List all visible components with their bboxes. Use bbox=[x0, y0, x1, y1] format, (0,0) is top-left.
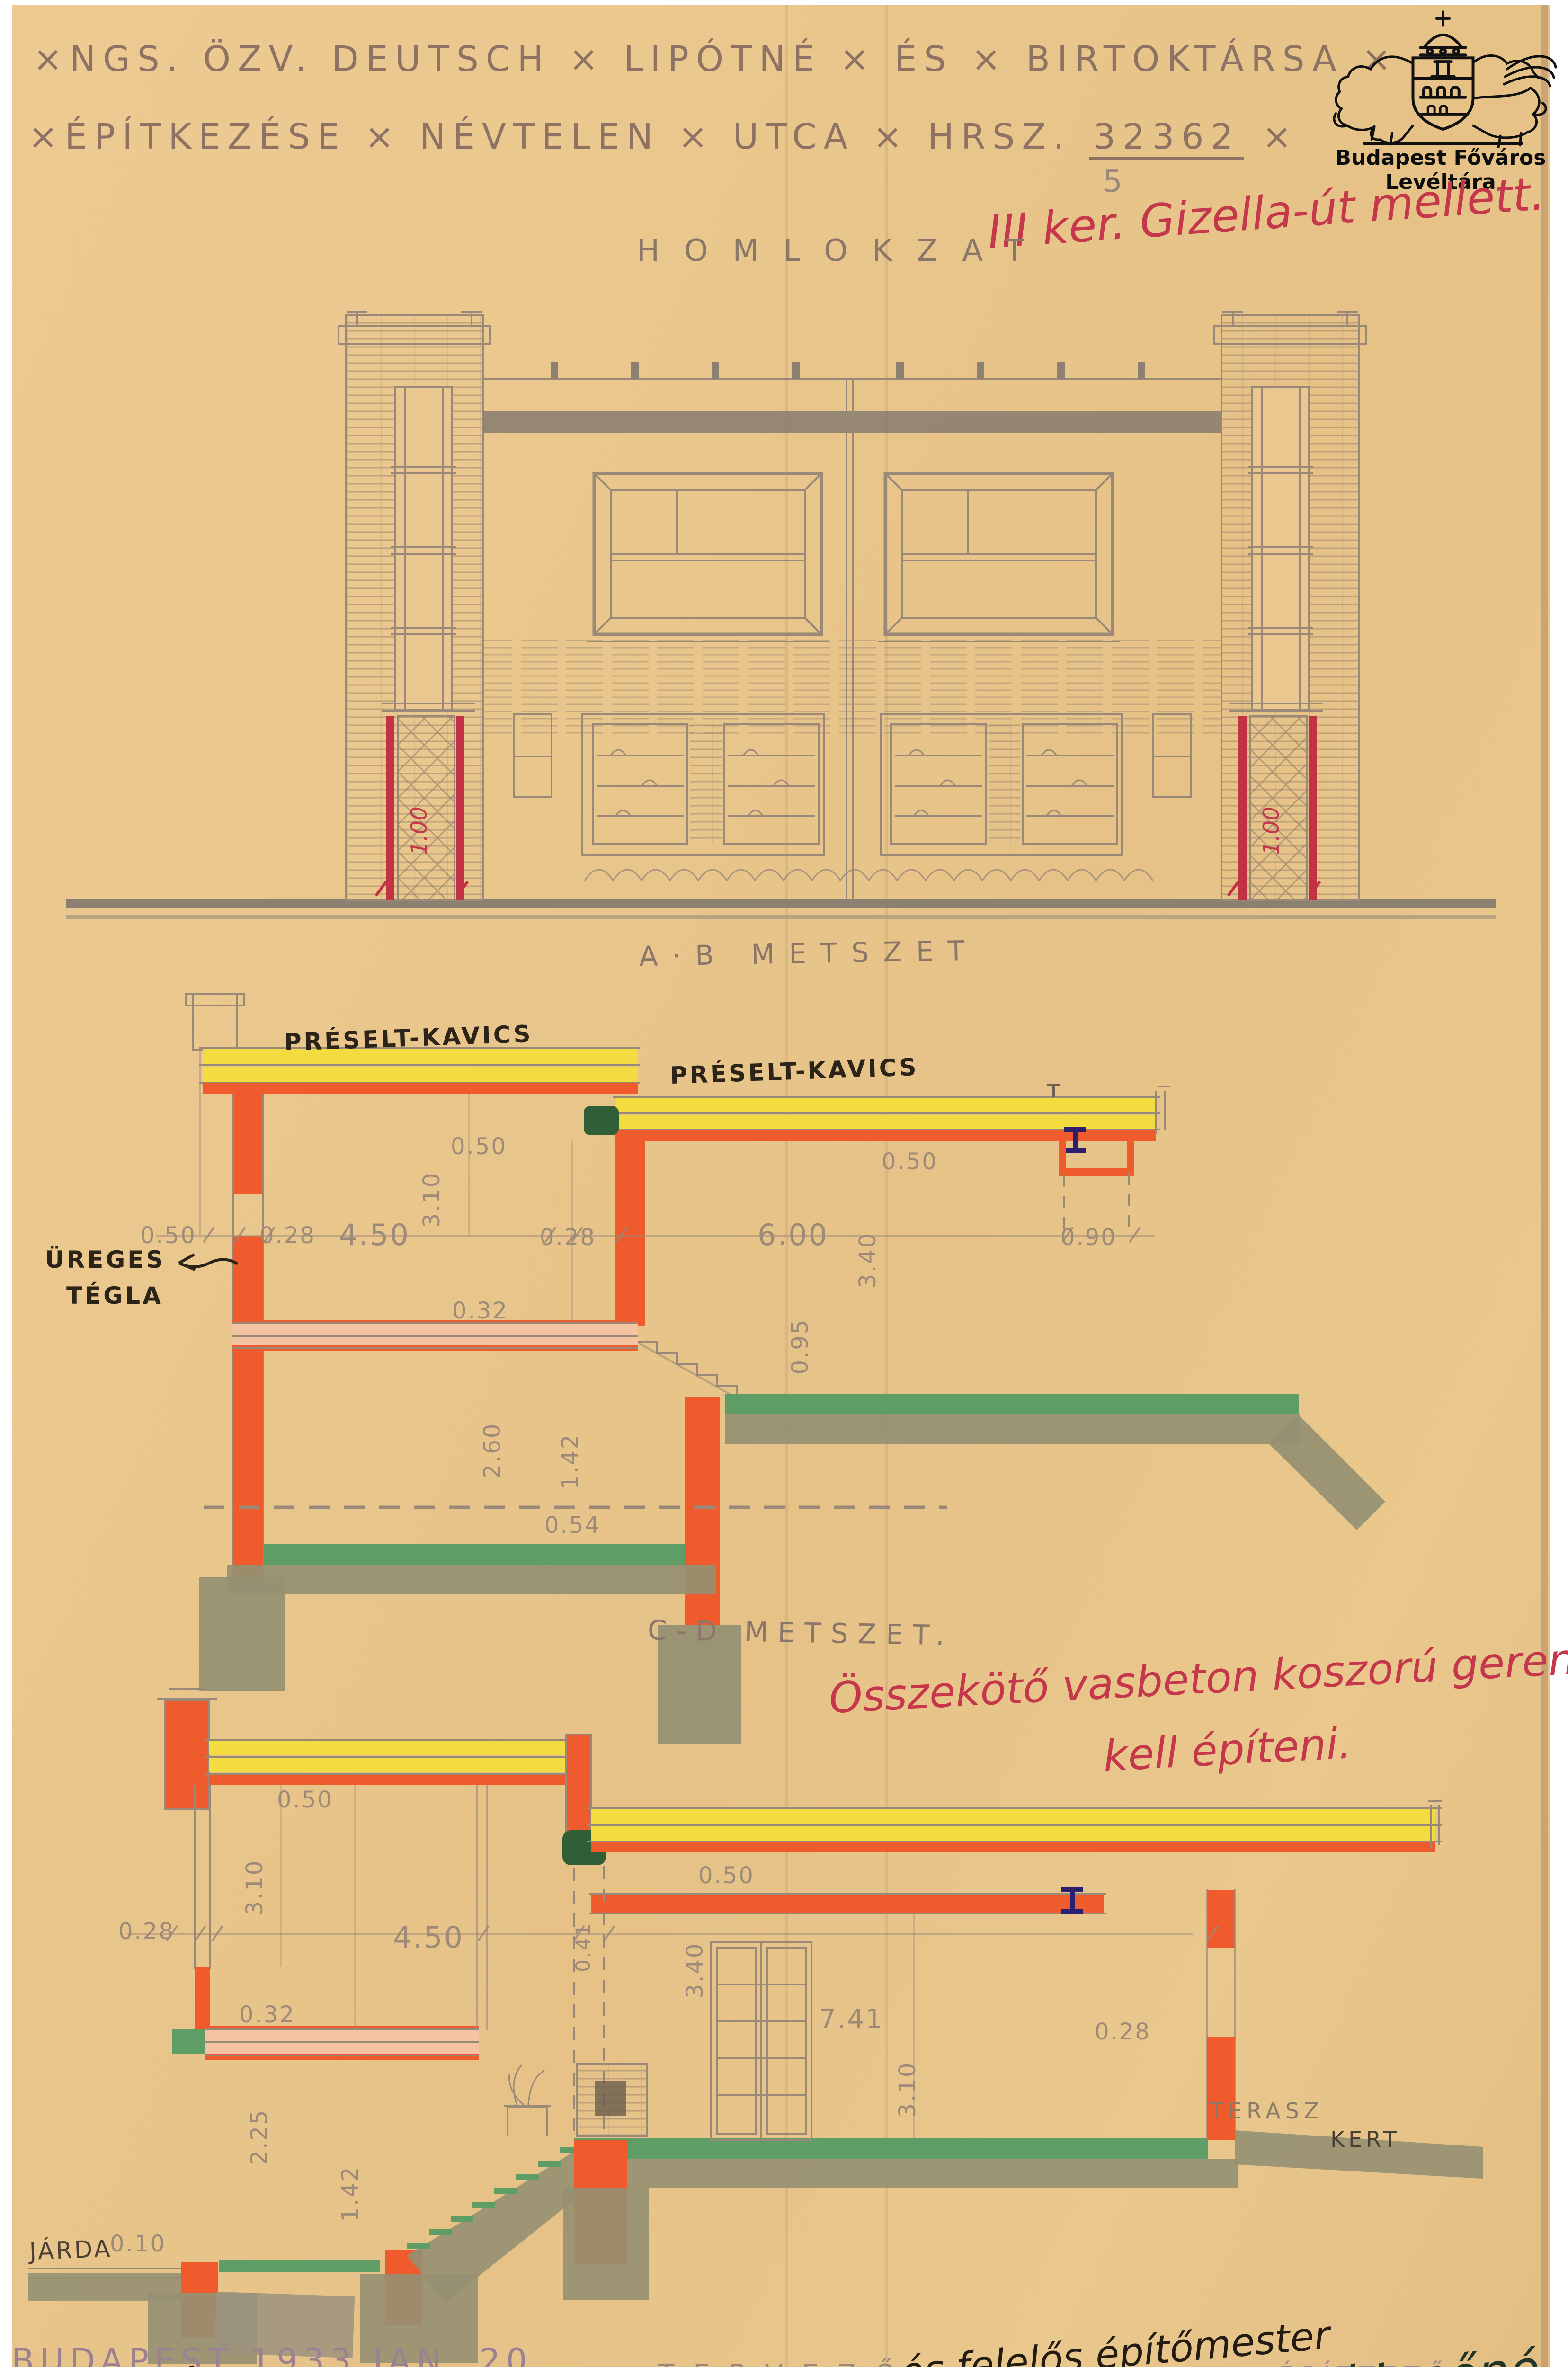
cd-dim-041: 0.41 bbox=[573, 1916, 593, 1978]
section-ab-title: A·B METSZET bbox=[639, 937, 979, 970]
section-cd-title: C-D METSZET. bbox=[648, 1616, 954, 1649]
cd-dim-028-right: 0.28 bbox=[1095, 2020, 1151, 2043]
cd-dim-340: 3.40 bbox=[684, 1932, 706, 2008]
cd-dim-225: 2.25 bbox=[248, 2090, 271, 2184]
ab-dim-roof-left: 0.50 bbox=[451, 1135, 507, 1158]
facade-title: HOMLOKZAT bbox=[637, 236, 1048, 266]
scanned-plan-page: ×NGS. ÖZV. DEUTSCH × LIPÓTNÉ × ÉS × BIRT… bbox=[0, 0, 1568, 2367]
archive-logo: Budapest Főváros Levéltára bbox=[1321, 6, 1565, 169]
ab-dim-row-028b: 0.28 bbox=[540, 1226, 596, 1249]
parcel-subnumber: 5 bbox=[1103, 167, 1123, 197]
cd-dim-032: 0.32 bbox=[239, 2003, 295, 2026]
ab-dim-row-450: 4.50 bbox=[339, 1220, 410, 1250]
archive-coat-of-arms-icon bbox=[1321, 6, 1565, 148]
ab-dim-row-028a: 0.28 bbox=[259, 1224, 316, 1247]
cd-dim-310-right: 3.10 bbox=[896, 2049, 919, 2130]
ab-dim-054: 0.54 bbox=[544, 1514, 601, 1537]
parcel-number: 32362 bbox=[1089, 116, 1244, 160]
cd-dim-741: 7.41 bbox=[819, 2006, 884, 2033]
cd-dim-450: 4.50 bbox=[393, 1923, 464, 1952]
plan-title-line2-suffix: × bbox=[1262, 116, 1299, 157]
paper-edge bbox=[1541, 0, 1548, 2367]
facade-door-dim-right: 1.00 bbox=[1260, 795, 1282, 866]
ab-hollow-brick-label-2: TÉGLA bbox=[66, 1284, 163, 1308]
cd-dim-028-left: 0.28 bbox=[118, 1920, 175, 1943]
ab-dim-310: 3.10 bbox=[420, 1162, 443, 1237]
designer-label: TERVEZŐ bbox=[658, 2361, 915, 2367]
plan-title-line1: ×NGS. ÖZV. DEUTSCH × LIPÓTNÉ × ÉS × BIRT… bbox=[33, 42, 1398, 77]
ab-dim-260: 2.60 bbox=[481, 1413, 504, 1488]
facade-door-dim-left: 1.00 bbox=[408, 795, 430, 866]
ab-dim-row-050: 0.50 bbox=[140, 1224, 196, 1247]
ab-hollow-brick-label-1: ÜREGES bbox=[45, 1248, 165, 1272]
cd-dim-roof-right: 0.50 bbox=[698, 1864, 755, 1887]
ab-dim-032: 0.32 bbox=[452, 1299, 508, 1322]
ab-dim-340: 3.40 bbox=[856, 1222, 879, 1298]
scan-margin bbox=[0, 0, 1568, 5]
ab-dim-095: 0.95 bbox=[789, 1308, 811, 1384]
plan-title-line2-text: ×ÉPÍTKEZÉSE × NÉVTELEN × UTCA × HRSZ. bbox=[28, 116, 1071, 157]
cd-dim-142: 1.42 bbox=[339, 2156, 362, 2232]
ab-dim-roof-right: 0.50 bbox=[882, 1150, 938, 1173]
cd-sidewalk-label: JÁRDA bbox=[29, 2237, 112, 2263]
scan-margin bbox=[0, 0, 12, 2367]
ab-dim-row-090: 0.90 bbox=[1060, 1226, 1117, 1249]
cd-garden-label: KERT bbox=[1330, 2128, 1400, 2150]
cd-dim-310-left: 3.10 bbox=[243, 1850, 266, 1925]
date-stamp: BUDAPEST 1933 JAN. 20 bbox=[11, 2344, 533, 2367]
scan-margin bbox=[1558, 0, 1568, 2367]
cd-dim-roof-left: 0.50 bbox=[277, 1789, 333, 1811]
ab-dim-142: 1.42 bbox=[559, 1424, 582, 1499]
cd-terrace-label: TERASZ bbox=[1210, 2100, 1323, 2122]
ab-dim-row-600: 6.00 bbox=[757, 1220, 829, 1250]
cd-dim-010: 0.10 bbox=[110, 2233, 166, 2255]
plan-title-line2: ×ÉPÍTKEZÉSE × NÉVTELEN × UTCA × HRSZ. 32… bbox=[28, 119, 1299, 154]
